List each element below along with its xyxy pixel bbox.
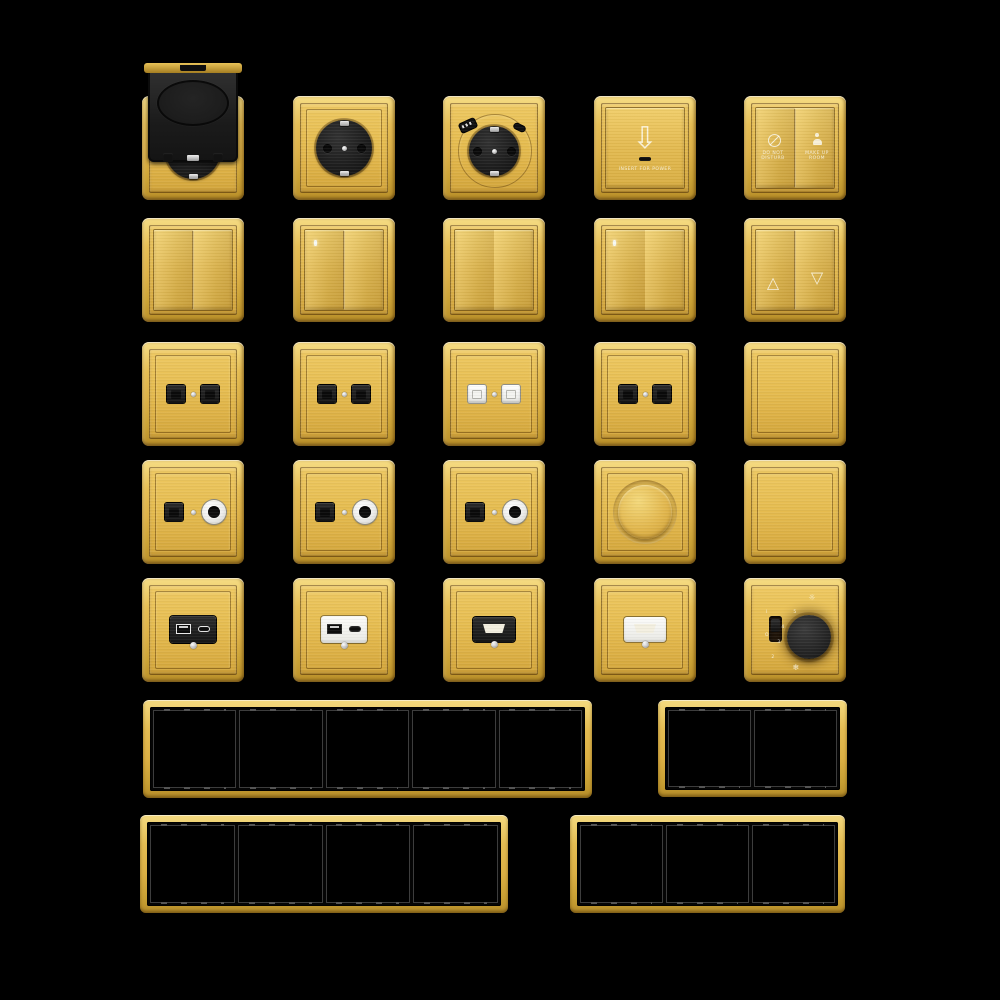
tv-data-socket-1-plate xyxy=(149,467,237,557)
screw-detail xyxy=(342,392,347,397)
curtain-down-icon: ▽ xyxy=(811,270,823,286)
rocker-left-half xyxy=(756,230,795,310)
product-collage: ⇩INSERT FOR POWERDO NOTDISTURBMAKE UPROO… xyxy=(0,0,1000,1000)
led-slot xyxy=(639,157,651,161)
hdmi-socket-white-plate xyxy=(601,585,689,675)
flip-cover-open xyxy=(148,65,238,162)
screw-detail xyxy=(643,392,648,397)
schuko-socket-face xyxy=(316,120,372,176)
insert-for-power-label: INSERT FOR POWER xyxy=(619,167,672,172)
tv-data-socket-2[interactable] xyxy=(293,460,395,564)
thermostat-knob[interactable] xyxy=(787,615,831,659)
plate-recess xyxy=(757,473,833,551)
engraved-label: O xyxy=(765,633,769,638)
one-gang-rocker-switch[interactable] xyxy=(443,218,545,322)
tv-data-socket-3-plate xyxy=(450,467,538,557)
engraved-label: 2 xyxy=(771,655,774,660)
dual-data-socket-white-plate xyxy=(450,349,538,439)
data-jack-left xyxy=(619,385,637,403)
two-gang-rocker-switch-plate xyxy=(149,225,237,315)
usb-c-port xyxy=(350,627,360,631)
thermostat-dial[interactable]: IO5432☼❄ xyxy=(744,578,846,682)
data-jack-right xyxy=(201,385,219,403)
key-card-power-switch-plate: ⇩INSERT FOR POWER xyxy=(601,103,689,193)
rocker-shade xyxy=(606,230,645,310)
ground-clip-top xyxy=(340,121,349,126)
rocker-left-half xyxy=(305,230,344,310)
dual-data-socket-white[interactable] xyxy=(443,342,545,446)
dnd-slash-line xyxy=(770,135,780,145)
rocker-shade2 xyxy=(494,230,533,310)
schuko-socket-face xyxy=(469,126,519,176)
schuko-socket-plate xyxy=(300,103,388,193)
ground-clip-bottom xyxy=(490,171,499,176)
rocker-face xyxy=(606,230,684,310)
frame-gang-opening xyxy=(580,825,663,903)
pin-hole-left xyxy=(473,147,482,156)
rocker-right-half xyxy=(344,230,383,310)
frame-gang-opening xyxy=(238,825,323,903)
frame-gang-opening xyxy=(413,825,498,903)
frame-gang-opening xyxy=(666,825,749,903)
usb-module xyxy=(321,616,367,643)
make-up-room-icon-body xyxy=(813,139,822,145)
do-not-disturb-icon xyxy=(768,134,781,147)
pin-hole-right xyxy=(507,147,516,156)
tv-data-socket-2-plate xyxy=(300,467,388,557)
heat-sun-icon: ☼ xyxy=(808,594,815,602)
data-jack xyxy=(165,503,183,521)
engraved-label: 5 xyxy=(793,610,796,615)
service-rocker xyxy=(756,108,834,188)
cover-hinge-left xyxy=(163,153,173,162)
engraved-label: I xyxy=(766,610,768,615)
schuko-usb-socket-plate xyxy=(450,103,538,193)
rotary-dimmer-plate xyxy=(601,467,689,557)
ground-clip-bottom xyxy=(340,171,349,176)
rocker-face xyxy=(305,230,383,310)
frame-gang-opening xyxy=(412,710,495,788)
data-jack-left xyxy=(318,385,336,403)
coax-tv-connector xyxy=(202,500,226,524)
screw-detail xyxy=(492,510,497,515)
rotary-dimmer[interactable] xyxy=(594,460,696,564)
data-jack-right xyxy=(653,385,671,403)
usb-charger-black-plate xyxy=(149,585,237,675)
tv-data-socket-1[interactable] xyxy=(142,460,244,564)
rocker-divider xyxy=(192,231,194,309)
blank-plate-1[interactable] xyxy=(744,342,846,446)
data-jack xyxy=(316,503,334,521)
blank-plate-1-plate xyxy=(751,349,839,439)
power-toggle[interactable] xyxy=(769,616,782,642)
screw-detail xyxy=(342,510,347,515)
insert-arrow-icon: ⇩ xyxy=(632,124,657,154)
cover-latch-top xyxy=(180,65,206,71)
data-jack-left xyxy=(167,385,185,403)
blank-plate-2[interactable] xyxy=(744,460,846,564)
cover-oval-recess xyxy=(157,80,229,126)
thermostat-dial-plate: IO5432☼❄ xyxy=(751,585,839,675)
frame-4gang-inner xyxy=(147,822,501,906)
screw-detail xyxy=(642,641,649,648)
frame-gang-opening xyxy=(150,825,235,903)
indicator-led xyxy=(613,240,616,246)
screw-detail xyxy=(341,642,348,649)
frame-gang-opening xyxy=(754,710,837,787)
make-up-room-icon xyxy=(815,133,819,137)
indicator-led xyxy=(314,240,317,246)
plate-recess xyxy=(757,355,833,433)
dual-data-socket-black-2-plate xyxy=(300,349,388,439)
schuko-usb-socket[interactable] xyxy=(443,96,545,200)
hdmi-socket-black[interactable] xyxy=(443,578,545,682)
usb-module xyxy=(170,616,216,643)
engraved-label: ROOM xyxy=(809,156,825,161)
frame-gang-opening xyxy=(499,710,582,788)
frame-4gang[interactable] xyxy=(140,815,508,913)
two-gang-rocker-switch-led[interactable] xyxy=(293,218,395,322)
screw-detail xyxy=(191,392,196,397)
usb-c-port xyxy=(199,627,209,631)
tv-data-socket-3[interactable] xyxy=(443,460,545,564)
hdmi-module xyxy=(624,617,666,642)
usb-a-port xyxy=(328,625,341,633)
rocker-divider xyxy=(794,109,796,187)
usb-charger-white-plate xyxy=(300,585,388,675)
blank-plate-2-plate xyxy=(751,467,839,557)
rocker-left-half xyxy=(756,108,795,188)
data-jack-right xyxy=(502,385,520,403)
cover-hinge-right xyxy=(213,153,223,162)
rocker-right-half xyxy=(193,230,232,310)
pin-hole-left xyxy=(323,144,332,153)
screw-detail xyxy=(191,510,196,515)
rocker-shade2 xyxy=(645,230,684,310)
frame-3gang-inner xyxy=(577,822,838,906)
rocker-divider xyxy=(794,231,796,309)
dual-data-socket-black-1-plate xyxy=(149,349,237,439)
rocker-face xyxy=(455,230,533,310)
one-gang-rocker-switch-led-plate xyxy=(601,225,689,315)
center-screw xyxy=(492,149,497,154)
cover-latch-silver xyxy=(187,155,199,161)
hdmi-port xyxy=(483,624,505,633)
data-jack-left xyxy=(468,385,486,403)
pin-hole-right xyxy=(357,144,366,153)
curtain-switch[interactable]: △▽ xyxy=(744,218,846,322)
two-gang-rocker-switch-led-plate xyxy=(300,225,388,315)
usb-charger-black[interactable] xyxy=(142,578,244,682)
data-jack xyxy=(466,503,484,521)
one-gang-rocker-switch-led[interactable] xyxy=(594,218,696,322)
data-jack-right xyxy=(352,385,370,403)
screw-detail xyxy=(190,642,197,649)
rocker-right-half xyxy=(795,108,834,188)
curtain-up-icon: △ xyxy=(767,275,779,291)
dual-data-socket-black-3-plate xyxy=(601,349,689,439)
key-card-power-switch[interactable]: ⇩INSERT FOR POWER xyxy=(594,96,696,200)
dimmer-knob xyxy=(618,485,672,539)
engraved-label: DISTURB xyxy=(761,156,784,161)
frame-gang-opening xyxy=(153,710,236,788)
frame-5gang-inner xyxy=(150,707,585,791)
rocker-divider xyxy=(343,231,345,309)
center-screw xyxy=(342,146,347,151)
rocker-shade xyxy=(455,230,494,310)
coax-tv-connector xyxy=(353,500,377,524)
ground-clip-bottom xyxy=(189,174,198,179)
one-gang-rocker-switch-plate xyxy=(450,225,538,315)
toggle-lever xyxy=(771,619,780,632)
engraved-label: 4 xyxy=(781,625,784,630)
schuko-socket[interactable] xyxy=(293,96,395,200)
frame-gang-opening xyxy=(752,825,835,903)
hotel-service-switch[interactable]: DO NOTDISTURBMAKE UPROOM xyxy=(744,96,846,200)
screw-detail xyxy=(492,392,497,397)
cool-snow-icon: ❄ xyxy=(793,664,800,672)
dual-data-socket-black-2[interactable] xyxy=(293,342,395,446)
frame-gang-opening xyxy=(668,710,751,787)
usb-a-port xyxy=(177,625,190,633)
frame-5gang[interactable] xyxy=(143,700,592,798)
dual-data-socket-black-3[interactable] xyxy=(594,342,696,446)
two-gang-rocker-switch[interactable] xyxy=(142,218,244,322)
usb-charger-white[interactable] xyxy=(293,578,395,682)
hdmi-module xyxy=(473,617,515,642)
ground-clip-top xyxy=(490,127,499,132)
rocker-left-half xyxy=(154,230,193,310)
curtain-switch-plate: △▽ xyxy=(751,225,839,315)
coax-tv-connector xyxy=(503,500,527,524)
hdmi-socket-black-plate xyxy=(450,585,538,675)
hdmi-port xyxy=(634,624,656,633)
hdmi-socket-white[interactable] xyxy=(594,578,696,682)
frame-3gang[interactable] xyxy=(570,815,845,913)
engraved-label: 3 xyxy=(777,640,780,645)
frame-gang-opening xyxy=(326,825,411,903)
screw-detail xyxy=(491,641,498,648)
frame-2gang-inner xyxy=(665,707,840,790)
hotel-service-switch-plate: DO NOTDISTURBMAKE UPROOM xyxy=(751,103,839,193)
rocker-face xyxy=(154,230,232,310)
frame-gang-opening xyxy=(326,710,409,788)
weatherproof-schuko-socket[interactable] xyxy=(142,96,244,200)
frame-2gang[interactable] xyxy=(658,700,847,797)
frame-gang-opening xyxy=(239,710,322,788)
dual-data-socket-black-1[interactable] xyxy=(142,342,244,446)
